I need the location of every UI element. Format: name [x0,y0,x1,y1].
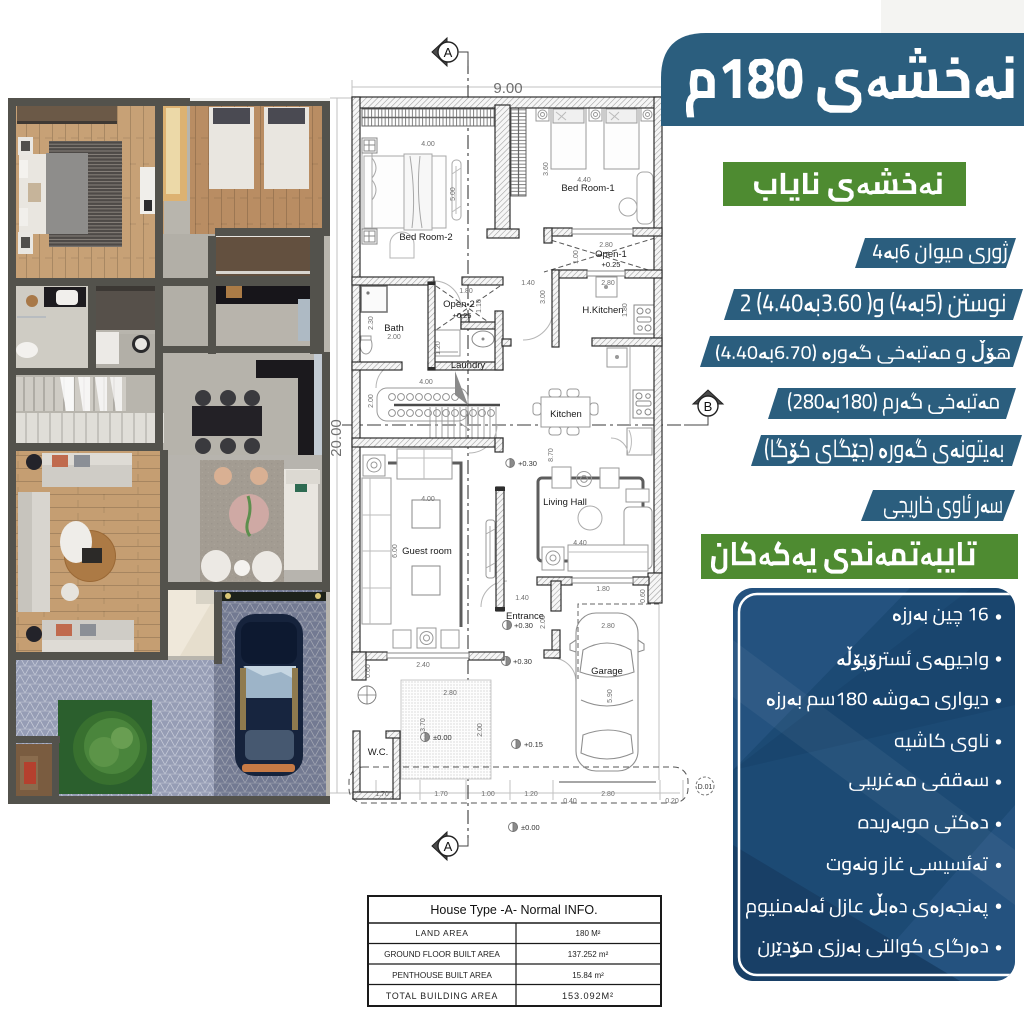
svg-text:PENTHOUSE BUILT AREA: PENTHOUSE BUILT AREA [392,971,492,980]
svg-text:Guest room: Guest room [402,546,452,557]
svg-text:3.60: 3.60 [543,162,550,176]
svg-text:1.00: 1.00 [481,791,495,798]
svg-text:1.20: 1.20 [435,341,442,355]
svg-text:4.40: 4.40 [573,540,587,547]
svg-text:Living Hall: Living Hall [543,497,587,508]
svg-text:Laundry: Laundry [451,360,486,371]
svg-text:Open-2: Open-2 [443,299,475,310]
svg-text:153.092M²: 153.092M² [562,991,614,1001]
svg-text:±0.00: ±0.00 [521,823,540,832]
svg-text:+0.15: +0.15 [524,740,543,749]
svg-text:1.80: 1.80 [459,288,473,295]
svg-text:+0.25: +0.25 [453,311,472,320]
svg-text:2.00: 2.00 [540,615,547,629]
svg-text:+0.30: +0.30 [513,657,532,666]
svg-text:137.252 m²: 137.252 m² [568,950,609,959]
svg-text:4.00: 4.00 [421,141,435,148]
svg-text:9.00: 9.00 [493,80,522,97]
svg-text:1.40: 1.40 [515,595,529,602]
svg-text:1.20: 1.20 [524,791,538,798]
svg-text:+0.25: +0.25 [602,260,621,269]
svg-text:2.00: 2.00 [477,723,484,737]
svg-text:1.70: 1.70 [375,791,389,798]
svg-text:1.80: 1.80 [622,303,629,317]
svg-text:H.Kitchen: H.Kitchen [582,305,623,316]
svg-text:+0.30: +0.30 [518,459,537,468]
svg-text:0.40: 0.40 [563,798,577,805]
svg-text:1.00: 1.00 [573,250,580,264]
svg-text:1.10: 1.10 [476,299,483,313]
svg-text:1.70: 1.70 [434,791,448,798]
svg-text:2.80: 2.80 [443,690,457,697]
svg-text:±0.00: ±0.00 [433,733,452,742]
svg-text:2.00: 2.00 [368,394,375,408]
svg-text:Garage: Garage [591,666,623,677]
svg-text:TOTAL BUILDING AREA: TOTAL BUILDING AREA [386,991,498,1001]
svg-text:House Type -A- Normal INFO.: House Type -A- Normal INFO. [430,903,597,917]
svg-text:Bed Room-1: Bed Room-1 [561,183,614,194]
svg-text:4.00: 4.00 [419,379,433,386]
svg-text:180 M²: 180 M² [576,929,601,938]
svg-text:2.80: 2.80 [599,242,613,249]
svg-text:6.00: 6.00 [392,544,399,558]
svg-text:1.40: 1.40 [521,280,535,287]
svg-text:2.00: 2.00 [387,334,401,341]
svg-text:GROUND FLOOR BUILT AREA: GROUND FLOOR BUILT AREA [384,950,500,959]
svg-text:Kitchen: Kitchen [550,409,582,420]
svg-text:5.00: 5.00 [450,187,457,201]
svg-text:3.00: 3.00 [540,290,547,304]
svg-text:2.30: 2.30 [368,316,375,330]
svg-text:1.80: 1.80 [596,586,610,593]
svg-text:W.C.: W.C. [368,747,389,758]
svg-text:D.01: D.01 [698,784,713,791]
svg-text:2.80: 2.80 [601,280,615,287]
svg-text:Bed Room-2: Bed Room-2 [399,232,452,243]
svg-text:15.84 m²: 15.84 m² [572,971,604,980]
svg-text:0.60: 0.60 [365,664,372,678]
svg-text:Bath: Bath [384,323,404,334]
svg-text:LAND AREA: LAND AREA [415,928,468,938]
svg-text:3.70: 3.70 [420,718,427,732]
svg-text:0.60: 0.60 [640,589,647,603]
svg-text:A: A [444,839,453,854]
svg-text:A: A [444,45,453,60]
svg-text:2.80: 2.80 [601,623,615,630]
svg-text:4.40: 4.40 [577,177,591,184]
svg-text:5.90: 5.90 [607,689,614,703]
svg-text:8.70: 8.70 [548,448,555,462]
svg-text:+0.30: +0.30 [514,621,533,630]
svg-text:4.00: 4.00 [421,496,435,503]
svg-text:Open-1: Open-1 [595,249,627,260]
svg-text:0.20: 0.20 [665,798,679,805]
svg-text:B: B [704,399,713,414]
svg-text:2.40: 2.40 [416,662,430,669]
svg-text:2.80: 2.80 [601,791,615,798]
